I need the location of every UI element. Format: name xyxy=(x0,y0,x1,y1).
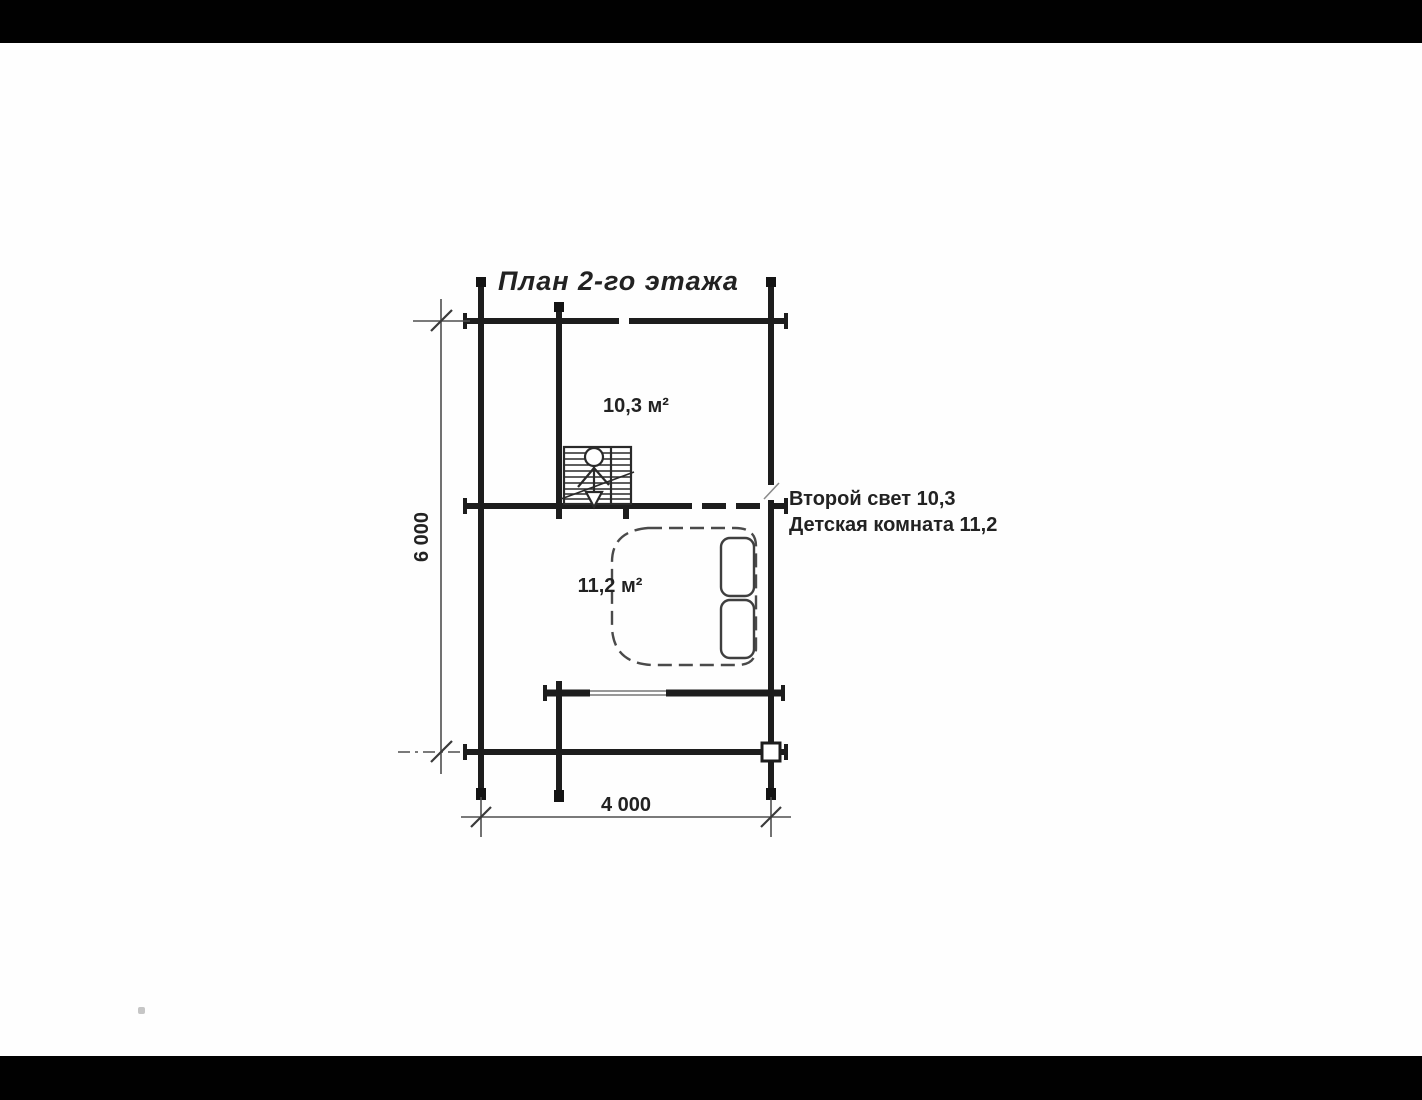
staircase xyxy=(561,447,634,507)
width-dim-label: 4 000 xyxy=(601,794,651,816)
page: 6 000 4 000 План 2-го этажа 10,3 м² 11,2… xyxy=(0,0,1422,1100)
bed-pillow-bottom xyxy=(721,600,754,658)
bed-pillow-top xyxy=(721,538,754,596)
room-area-label-upper: 10,3 м² xyxy=(603,395,669,417)
floor-plan-drawing: 6 000 4 000 План 2-го этажа 10,3 м² 11,2… xyxy=(0,0,1422,1100)
dimension-width: 4 000 xyxy=(461,794,791,837)
railing-window-lines xyxy=(590,691,666,695)
dimension-height: 6 000 xyxy=(398,299,470,774)
stair-direction-circle xyxy=(585,448,603,466)
corner-node xyxy=(762,743,780,761)
annotation-children-room: Детская комната 11,2 xyxy=(789,514,997,536)
plan-title: План 2-го этажа xyxy=(498,266,739,296)
window-railing xyxy=(543,685,785,701)
room-area-label-lower: 11,2 м² xyxy=(578,575,643,597)
height-dim-label: 6 000 xyxy=(411,512,433,562)
annotation-second-light: Второй свет 10,3 xyxy=(789,488,956,510)
